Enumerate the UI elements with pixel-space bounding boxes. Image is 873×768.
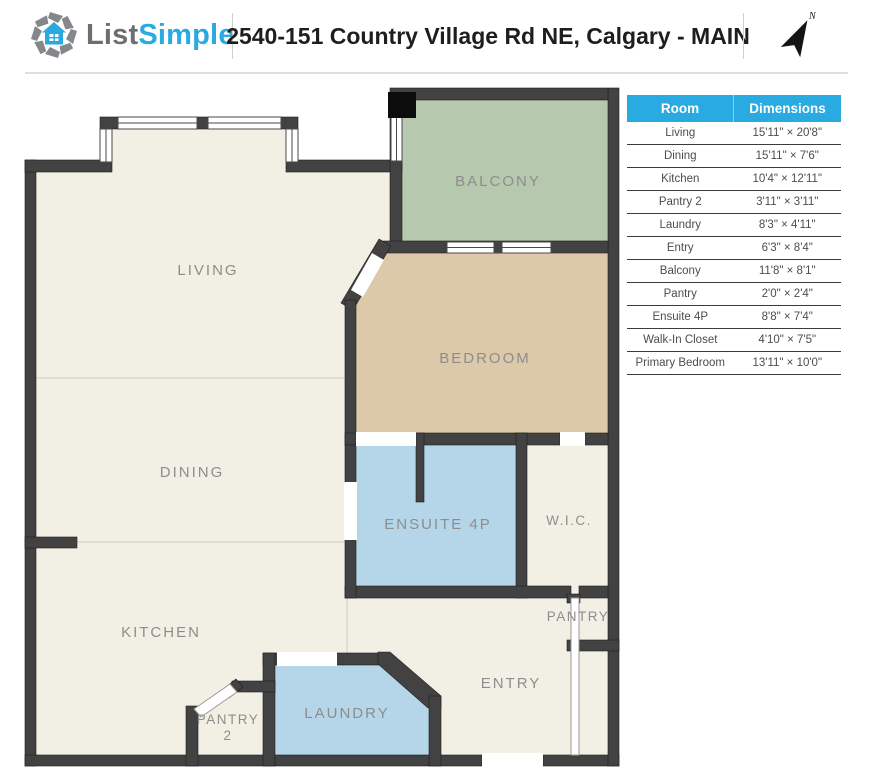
room-label-entry: ENTRY [481,675,542,693]
room-name: Living [627,122,734,145]
room-name: Dining [627,145,734,168]
table-row: Living15'11" × 20'8" [627,122,841,145]
room-label-pantry2-line2: 2 [197,728,260,744]
room-label-pantry2: PANTRY 2 [197,712,260,744]
room-dims: 15'11" × 20'8" [734,122,842,145]
room-label-pantry2-line1: PANTRY [197,712,260,728]
table-row: Pantry 23'11" × 3'11" [627,191,841,214]
room-label-wic: W.I.C. [546,513,592,529]
room-dims: 8'8" × 7'4" [734,306,842,329]
dimensions-table: Room Dimensions Living15'11" × 20'8" Din… [627,95,841,375]
room-name: Primary Bedroom [627,352,734,375]
table-row: Pantry2'0" × 2'4" [627,283,841,306]
room-dims: 3'11" × 3'11" [734,191,842,214]
room-name: Kitchen [627,168,734,191]
column-header-dimensions: Dimensions [734,95,842,122]
room-dims: 11'8" × 8'1" [734,260,842,283]
room-label-laundry: LAUNDRY [304,705,389,723]
dimensions-table-header: Room Dimensions [627,95,841,122]
table-row: Walk-In Closet4'10" × 7'5" [627,329,841,352]
table-row: Balcony11'8" × 8'1" [627,260,841,283]
room-label-ensuite: ENSUITE 4P [384,516,492,534]
room-name: Balcony [627,260,734,283]
room-dims: 15'11" × 7'6" [734,145,842,168]
room-dims: 8'3" × 4'11" [734,214,842,237]
room-name: Laundry [627,214,734,237]
room-name: Pantry 2 [627,191,734,214]
table-row: Kitchen10'4" × 12'11" [627,168,841,191]
table-row: Entry6'3" × 8'4" [627,237,841,260]
room-label-balcony: BALCONY [455,173,541,191]
room-dims: 4'10" × 7'5" [734,329,842,352]
room-name: Entry [627,237,734,260]
room-label-dining: DINING [160,464,225,482]
column-header-room: Room [627,95,734,122]
balcony-post [388,92,416,118]
table-row: Ensuite 4P8'8" × 7'4" [627,306,841,329]
room-name: Walk-In Closet [627,329,734,352]
room-dims: 6'3" × 8'4" [734,237,842,260]
table-row: Dining15'11" × 7'6" [627,145,841,168]
room-label-living: LIVING [177,262,238,280]
floorplan-page: ListSimple 2540-151 Country Village Rd N… [0,0,873,768]
room-name: Pantry [627,283,734,306]
balcony-floor [390,92,613,250]
room-dims: 13'11" × 10'0" [734,352,842,375]
bedroom-floor [351,246,613,439]
room-label-pantry: PANTRY [547,609,610,625]
room-dims: 2'0" × 2'4" [734,283,842,306]
room-label-bedroom: BEDROOM [439,350,531,368]
table-row: Laundry8'3" × 4'11" [627,214,841,237]
room-label-kitchen: KITCHEN [121,624,201,642]
room-dims: 10'4" × 12'11" [734,168,842,191]
room-name: Ensuite 4P [627,306,734,329]
table-row: Primary Bedroom13'11" × 10'0" [627,352,841,375]
